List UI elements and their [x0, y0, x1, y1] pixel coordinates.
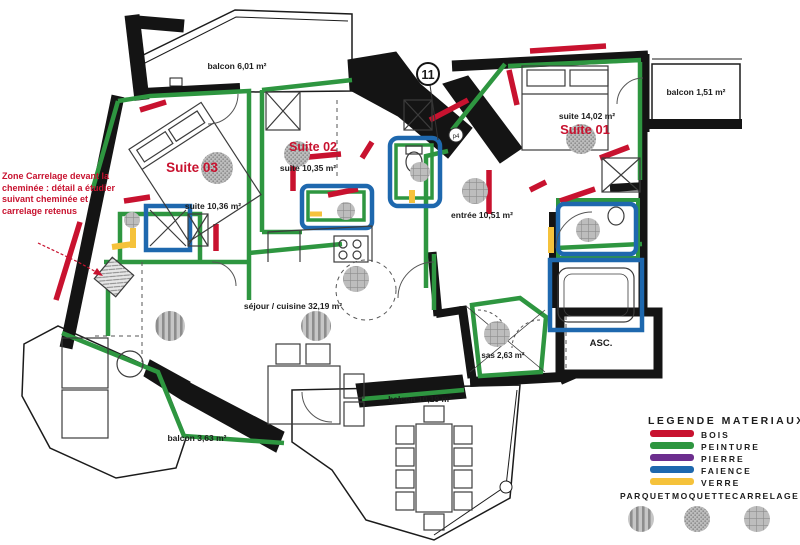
sub-marker: p4: [453, 134, 460, 140]
carrelage-circle: [576, 218, 600, 242]
label-suite02: Suite 02: [289, 140, 337, 154]
floor-plan-page: 11 p4 balcon 6,01 m² balcon 1,51 m² Suit…: [0, 0, 800, 545]
parquet-circle: [155, 311, 185, 341]
legend-title: LEGENDE MATERIAUX: [648, 415, 800, 427]
label-balcon-nw: balcon 6,01 m²: [207, 61, 266, 71]
label-suite02-area: suite 10,35 m²: [280, 163, 336, 173]
legend-carrelage-circle: [744, 506, 770, 532]
label-suite01: Suite 01: [560, 122, 610, 137]
legend-floor-carrelage: CARRELAGE: [732, 491, 799, 501]
plan-number: 11: [421, 68, 434, 82]
label-balcon-sw: balcon 3,63 m²: [167, 433, 226, 443]
legend-parquet-circle: [628, 506, 654, 532]
legend-label-faience: FAIENCE: [701, 466, 752, 476]
legend-floor-moquette: MOQUETTE: [672, 491, 732, 501]
legend-floor-parquet: PARQUET: [620, 491, 671, 501]
terrace-outline: [292, 385, 520, 540]
legend-swatch-faience: [650, 466, 694, 473]
carrelage-annotation: Zone Carrelage devant la cheminée : déta…: [2, 171, 122, 218]
legend-swatch-verre: [650, 478, 694, 485]
carrelage-circle: [410, 162, 430, 182]
label-balcon-ne: balcon 1,51 m²: [666, 87, 725, 97]
carrelage-circle: [462, 178, 488, 204]
balcony-chimney-mark: [170, 78, 182, 86]
legend-swatch-pierre: [650, 454, 694, 461]
legend-label-peinture: PEINTURE: [701, 442, 760, 452]
legend: LEGENDE MATERIAUX BOIS PEINTURE PIERRE F…: [620, 415, 800, 532]
legend-label-verre: VERRE: [701, 478, 740, 488]
floor-plan-drawing: 11 p4 balcon 6,01 m² balcon 1,51 m² Suit…: [0, 0, 800, 545]
legend-label-bois: BOIS: [701, 430, 730, 440]
label-sas: sas 2,63 m²: [481, 351, 524, 360]
label-suite03: Suite 03: [166, 160, 218, 175]
label-suite03-area: suite 10,36 m²: [185, 201, 241, 211]
carrelage-circle: [124, 212, 140, 228]
legend-swatch-peinture: [650, 442, 694, 449]
terrace-railing-pivot: [500, 481, 512, 493]
label-suite01-area: suite 14,02 m²: [559, 111, 615, 121]
label-sejour: séjour / cuisine 32,19 m²: [244, 301, 342, 311]
washbasin: [608, 207, 624, 225]
carrelage-circle: [343, 266, 369, 292]
legend-swatch-bois: [650, 430, 694, 437]
carrelage-circle: [337, 202, 355, 220]
label-balcon-s: balcon 10,19 m²: [388, 394, 452, 404]
stove: [334, 236, 368, 262]
parquet-circle: [301, 311, 331, 341]
legend-moquette-circle: [684, 506, 710, 532]
label-entree: entrée 10,51 m²: [451, 210, 513, 220]
carrelage-circle: [484, 321, 510, 347]
legend-label-pierre: PIERRE: [701, 454, 745, 464]
label-asc: ASC.: [590, 338, 613, 349]
